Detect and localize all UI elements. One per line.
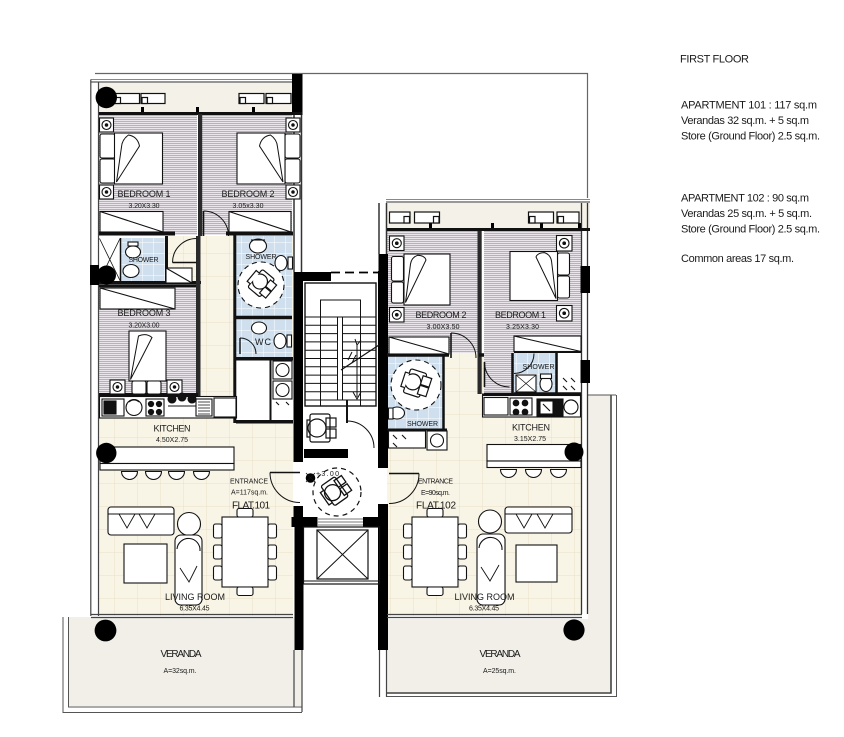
svg-text:APARTMENT 101 : 117 sq.m: APARTMENT 101 : 117 sq.m [681,100,817,112]
svg-text:A=25sq.m.: A=25sq.m. [483,668,516,675]
svg-text:4.50X2.75: 4.50X2.75 [156,437,188,444]
svg-text:KITCHEN: KITCHEN [512,423,550,433]
svg-text:3.20X3.00: 3.20X3.00 [129,323,160,330]
svg-text:6.35X4.45: 6.35X4.45 [180,606,210,613]
svg-text:SHOWER: SHOWER [129,257,159,264]
svg-text:VERANDA: VERANDA [161,649,202,660]
svg-text:SHOWER: SHOWER [523,364,555,371]
svg-text:Verandas 32 sq.m. + 5 sq.m: Verandas 32 sq.m. + 5 sq.m [681,115,809,127]
svg-text:APARTMENT 102 : 90 sq.m: APARTMENT 102 : 90 sq.m [681,193,809,205]
svg-text:Common areas 17 sq.m.: Common areas 17 sq.m. [681,253,794,265]
svg-text:3.15X2.75: 3.15X2.75 [514,436,546,443]
svg-text:+3.00: +3.00 [316,471,339,478]
svg-text:Verandas 25 sq.m. + 5 sq.m.: Verandas 25 sq.m. + 5 sq.m. [681,208,812,220]
svg-text:3.00X3.50: 3.00X3.50 [427,324,460,331]
svg-text:BEDROOM 3: BEDROOM 3 [118,308,171,318]
svg-text:FLAT.101: FLAT.101 [232,501,270,512]
svg-text:FLAT.102: FLAT.102 [416,501,456,512]
svg-text:BEDROOM 2: BEDROOM 2 [222,189,275,199]
svg-text:ENTRANCE: ENTRANCE [230,479,268,486]
svg-text:ENTRANCE: ENTRANCE [418,479,453,486]
svg-text:BEDROOM 1: BEDROOM 1 [118,189,171,199]
svg-text:3.25X3.30: 3.25X3.30 [506,324,539,331]
svg-text:LIVING ROOM: LIVING ROOM [165,592,225,602]
svg-text:E=90sq.m.: E=90sq.m. [421,490,450,497]
svg-text:A=117sq.m.: A=117sq.m. [231,490,268,497]
svg-text:3.05x3.30: 3.05x3.30 [233,203,264,210]
svg-text:Store (Ground Floor) 2.5 sq.m.: Store (Ground Floor) 2.5 sq.m. [681,224,820,236]
svg-text:SHOWER: SHOWER [246,254,277,261]
svg-text:LIVING ROOM: LIVING ROOM [455,592,515,602]
svg-text:Store (Ground Floor) 2.5 sq.m.: Store (Ground Floor) 2.5 sq.m. [681,131,820,143]
svg-text:BEDROOM 1: BEDROOM 1 [495,310,546,320]
svg-text:FIRST FLOOR: FIRST FLOOR [680,54,749,66]
svg-text:A=32sq.m.: A=32sq.m. [164,668,197,675]
svg-text:BEDROOM 2: BEDROOM 2 [416,310,467,320]
svg-text:SHOWER: SHOWER [407,421,438,428]
svg-text:VERANDA: VERANDA [480,649,521,660]
svg-text:KITCHEN: KITCHEN [154,424,191,434]
svg-text:WC: WC [255,337,272,347]
svg-text:6.35X4.45: 6.35X4.45 [469,606,499,613]
svg-text:3.20X3.30: 3.20X3.30 [129,203,160,210]
